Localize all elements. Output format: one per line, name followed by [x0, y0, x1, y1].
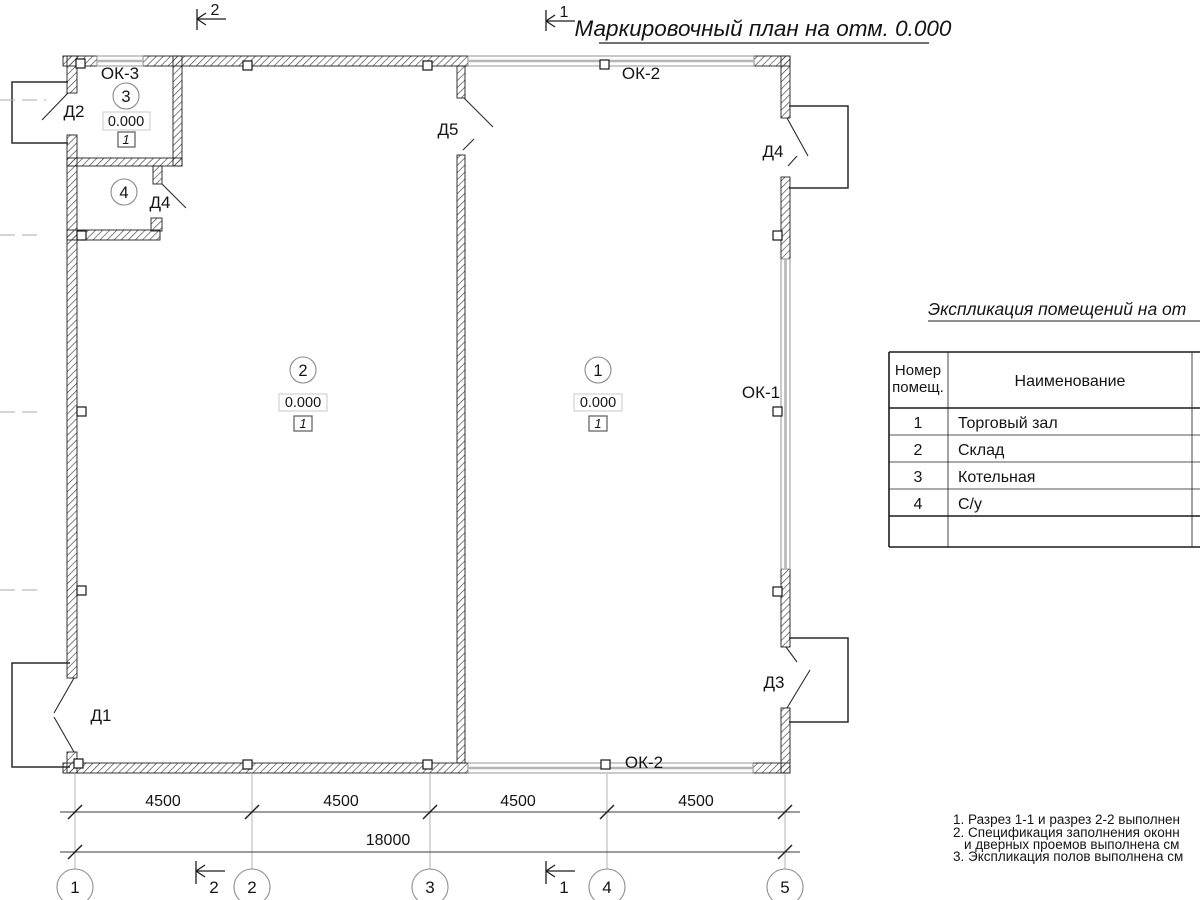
walls [63, 56, 790, 773]
notes: 1. Разрез 1-1 и разрез 2-2 выполнен 2. С… [953, 812, 1183, 864]
dim-bay-2: 4500 [323, 793, 359, 810]
room-number: 2 [298, 362, 307, 380]
door-swing-d4-b [788, 156, 797, 166]
door-label-d5: Д5 [438, 120, 459, 139]
column-marker [423, 61, 432, 70]
door-label-d4-room4: Д4 [150, 193, 171, 212]
porch-d4 [789, 106, 848, 188]
wall-left-b [67, 135, 77, 678]
door-swing-d1-a [54, 678, 74, 713]
column-marker [77, 586, 86, 595]
room-number: 1 [593, 362, 602, 380]
legend-table-title: Экспликация помещений на от [928, 299, 1186, 319]
wall-middle-main [457, 155, 465, 763]
room-marker-3: 3 0.000 1 [103, 83, 150, 147]
door-swing-d5-a [464, 98, 493, 127]
grid-bubbles: 1 2 3 4 5 [57, 869, 803, 900]
section-number: 2 [209, 878, 218, 897]
column-marker [77, 231, 86, 240]
wall-room3-bottom [67, 158, 182, 166]
elevation-value: 0.000 [108, 114, 144, 130]
elevation-value: 0.000 [285, 395, 321, 411]
grid-axis-label: 4 [602, 878, 611, 897]
floor-type: 1 [594, 416, 601, 431]
grid-axis-label: 1 [70, 878, 79, 897]
dim-bay-1: 4500 [145, 793, 181, 810]
porch-d1 [12, 663, 70, 767]
drawing-sheet: Маркировочный план на отм. 0.000 [0, 0, 1200, 900]
door-label-d2: Д2 [64, 102, 85, 121]
room-marker-1: 1 0.000 1 [574, 357, 622, 431]
room-marker-4: 4 [111, 179, 137, 205]
grid-axis-label: 5 [780, 878, 789, 897]
opening-labels: Д2 Д5 Д4 Д4 Д1 Д3 ОК-3 ОК-2 ОК-1 ОК-2 [64, 64, 785, 772]
column-marker [76, 59, 85, 68]
window-label-ok2-bottom: ОК-2 [625, 753, 663, 772]
column-marker [243, 61, 252, 70]
axis-dashes [0, 100, 46, 590]
wall-room4-stub-bottom [151, 218, 162, 231]
door-swing-d1-b [54, 717, 74, 752]
window-label-ok1: ОК-1 [742, 383, 780, 402]
door-label-d4: Д4 [763, 142, 784, 161]
column-marker [600, 60, 609, 69]
wall-right-d [781, 708, 790, 773]
col-header-number-line2: помещ. [892, 379, 944, 396]
wall-top-mid [143, 56, 468, 66]
door-swing-d5-b [463, 139, 474, 150]
wall-right-b [781, 177, 790, 259]
column-marker [773, 587, 782, 596]
section-mark-2-bottom: 2 [196, 861, 225, 897]
column-marker [773, 407, 782, 416]
window-label-ok2-top: ОК-2 [622, 64, 660, 83]
floor-type: 1 [299, 416, 306, 431]
dim-bay-3: 4500 [500, 793, 536, 810]
room-number: 4 [119, 184, 128, 202]
wall-bottom-left [63, 763, 468, 773]
dim-bay-4: 4500 [678, 793, 714, 810]
drawing-title: Маркировочный план на отм. 0.000 [575, 16, 952, 41]
section-number: 2 [211, 2, 220, 19]
grid-axis-label: 3 [425, 878, 434, 897]
column-marker [243, 760, 252, 769]
room-name-cell: Котельная [958, 469, 1035, 486]
column-marker [74, 759, 83, 768]
room-name-cell: Склад [958, 442, 1005, 459]
elevation-value: 0.000 [580, 395, 616, 411]
column-marker [423, 760, 432, 769]
room-num-cell: 2 [914, 442, 923, 459]
col-header-name: Наименование [1015, 373, 1126, 390]
door-label-d1: Д1 [91, 706, 112, 725]
room-num-cell: 3 [914, 469, 923, 486]
door-label-d3: Д3 [764, 673, 785, 692]
table-row: 2 Склад [914, 442, 1005, 459]
floor-type: 1 [122, 132, 129, 147]
grid-axis-label: 2 [247, 878, 256, 897]
section-number: 1 [560, 4, 569, 21]
column-marker [77, 407, 86, 416]
section-mark-1-top: 1 [546, 4, 575, 31]
dimensions: 4500 4500 4500 4500 18000 [60, 774, 800, 869]
room-num-cell: 1 [914, 415, 923, 432]
room-name-cell: Торговый зал [958, 415, 1058, 432]
wall-middle-top [457, 66, 465, 98]
door-swings [42, 93, 810, 752]
column-marker [773, 231, 782, 240]
column-marker [601, 760, 610, 769]
room-marker-2: 2 0.000 1 [279, 357, 327, 431]
door-swing-d3-b [787, 670, 810, 708]
section-mark-1-bottom: 1 [546, 861, 575, 897]
table-row: 3 Котельная [914, 469, 1036, 486]
floor-plan-svg: Маркировочный план на отм. 0.000 [0, 0, 1200, 900]
room-number: 3 [121, 88, 130, 106]
window-ok2-top [468, 56, 754, 66]
legend-table: Экспликация помещений на от Номер помещ.… [889, 299, 1200, 547]
wall-room3-right [173, 56, 182, 166]
dim-total: 18000 [366, 832, 411, 849]
porch-d3 [789, 638, 848, 722]
door-swing-d4-a [787, 118, 808, 156]
door-swing-d3-a [786, 647, 797, 662]
section-mark-2-top: 2 [197, 2, 226, 30]
table-row: 1 Торговый зал [914, 415, 1058, 432]
wall-room4-stub-top [153, 166, 162, 184]
room-name-cell: С/у [958, 496, 982, 513]
room-num-cell: 4 [914, 496, 923, 513]
porches [12, 82, 848, 767]
note-line: 3. Экспликация полов выполнена см [953, 849, 1183, 864]
section-number: 1 [559, 878, 568, 897]
wall-right-c [781, 569, 790, 647]
col-header-number-line1: Номер [895, 362, 941, 379]
window-label-ok3: ОК-3 [101, 64, 139, 83]
wall-right-a [781, 56, 790, 118]
porch-d2 [12, 82, 68, 143]
windows [97, 56, 790, 773]
